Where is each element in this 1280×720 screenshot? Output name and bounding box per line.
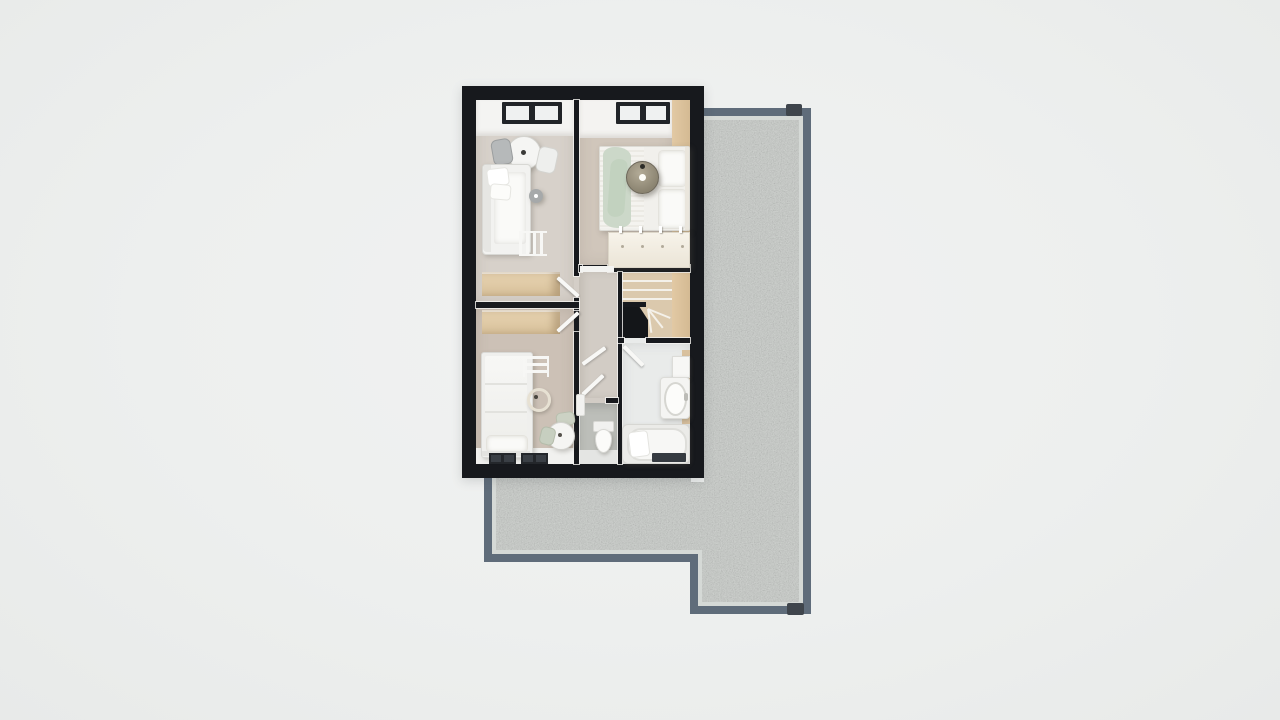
bed-headboard xyxy=(685,147,689,230)
wall-stairs-bottom-a xyxy=(618,338,624,343)
roof-window-pane xyxy=(646,106,666,120)
pendant-cord-dot xyxy=(640,164,645,169)
wall-stairs-left xyxy=(618,272,622,338)
wall-stairs-bottom-b xyxy=(646,338,690,343)
roof-window-bottom-left-1 xyxy=(489,453,516,464)
roof-fixture-bottom-right xyxy=(787,603,804,615)
stair-tread-3 xyxy=(622,298,672,300)
drawer-post xyxy=(659,226,662,233)
wall-vertical-main-top xyxy=(574,100,579,276)
doorway-threshold xyxy=(580,266,614,272)
drawer-knob xyxy=(661,245,664,248)
table-center-dot xyxy=(521,150,526,155)
drawer-post xyxy=(619,226,622,233)
drawer-post xyxy=(639,226,642,233)
blanket-ladder-bottom-left xyxy=(523,356,549,377)
ring-pendant-light xyxy=(527,388,551,412)
faucet xyxy=(684,393,688,401)
stair-tread-2 xyxy=(622,289,672,291)
rattan-pendant-light xyxy=(626,161,659,194)
bed-pillow xyxy=(658,189,687,229)
side-table-dot xyxy=(558,433,562,437)
roof-window-top-right xyxy=(616,102,670,124)
drawer-knob xyxy=(641,245,644,248)
house-interior xyxy=(476,100,690,464)
duvet-fold xyxy=(485,383,527,385)
roof-window-pane xyxy=(535,106,558,120)
wall-left-rooms-divider xyxy=(476,302,579,308)
wardrobe-bottom-left xyxy=(482,310,560,334)
wardrobe-top-left xyxy=(482,272,560,296)
roof-window-pane xyxy=(523,455,533,462)
bathroom-wall-cabinet xyxy=(672,356,690,378)
radiator xyxy=(576,394,585,416)
roof-window-top-left xyxy=(502,102,562,124)
chest-of-drawers xyxy=(608,232,690,268)
bed-pillow xyxy=(658,150,687,187)
roof-window-pane xyxy=(620,106,640,120)
pendant-bulb xyxy=(639,174,646,181)
floor-lamp xyxy=(529,189,543,203)
stair-guard-wall xyxy=(622,302,646,307)
roof-window-pane xyxy=(504,455,514,462)
roof-window-pane xyxy=(506,106,529,120)
duvet-fold xyxy=(485,411,527,413)
roof-window-pane xyxy=(536,455,546,462)
pendant-center-dot xyxy=(534,395,538,399)
stair-void xyxy=(622,302,648,338)
bath-pillow xyxy=(627,430,650,458)
wc-ceiling-band xyxy=(579,450,618,464)
blanket-ladder-top-left xyxy=(519,231,547,256)
toilet xyxy=(593,421,612,452)
drawer-knob xyxy=(681,245,684,248)
roof-window-pane xyxy=(491,455,501,462)
drawer-post xyxy=(679,226,682,233)
stair-tread-1 xyxy=(622,280,672,282)
chair-gray xyxy=(490,137,514,166)
roof-window-bottom-left-2 xyxy=(521,453,548,464)
bath-mat xyxy=(652,453,686,462)
sofa-pillow xyxy=(489,183,511,201)
lamp-bulb xyxy=(534,194,538,198)
wall-wc-top xyxy=(606,398,618,403)
bathroom-doorway-floor xyxy=(624,338,646,343)
roof-fixture-top-right xyxy=(786,104,802,116)
toilet-bowl xyxy=(595,429,612,453)
washbasin-vanity xyxy=(660,377,690,419)
bed-duvet xyxy=(485,356,527,436)
drawer-knob xyxy=(621,245,624,248)
floorplan-canvas xyxy=(0,0,1280,720)
